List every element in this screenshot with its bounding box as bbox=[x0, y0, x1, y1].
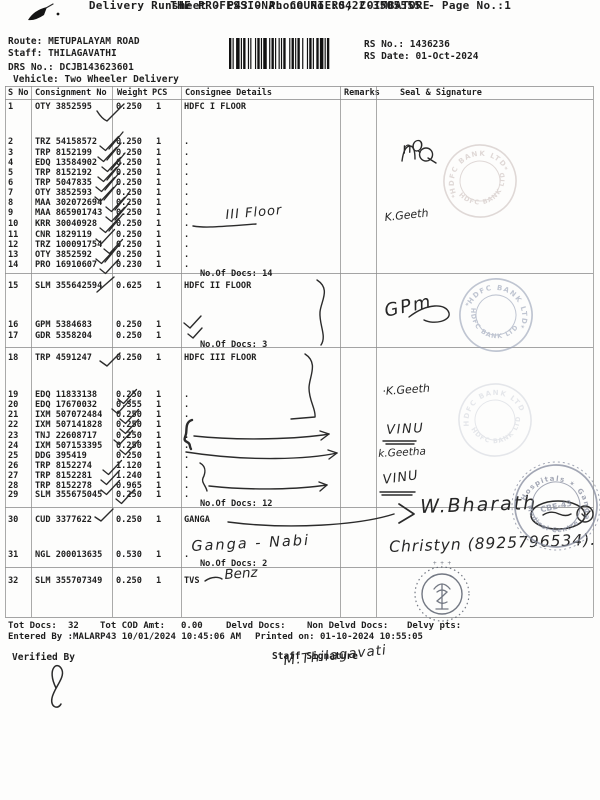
tot-cod-value: 0.00 bbox=[181, 622, 203, 631]
cell-weight: 0.250 bbox=[116, 149, 142, 158]
cell-pcs: 1 bbox=[156, 159, 161, 168]
cell-pcs: 1 bbox=[156, 199, 161, 208]
cell-sno: 7 bbox=[8, 189, 13, 198]
barcode-bar bbox=[255, 38, 256, 69]
cell-pcs: 1 bbox=[156, 189, 161, 198]
cell-consignment: DDG 395419 bbox=[35, 452, 87, 461]
barcode-bar bbox=[292, 38, 294, 69]
cell-sno: 30 bbox=[8, 516, 18, 525]
cell-sno: 8 bbox=[8, 199, 13, 208]
cell-pcs: 1 bbox=[156, 209, 161, 218]
cell-consignment: IXM 507072484 bbox=[35, 411, 102, 420]
barcode-bar bbox=[261, 38, 262, 69]
barcode-bar bbox=[281, 38, 282, 69]
col-consignee: Consignee Details bbox=[185, 89, 272, 98]
rs-no-label: RS No.: bbox=[364, 39, 404, 50]
signature-vinu-1: VINU bbox=[386, 422, 425, 437]
barcode-bar bbox=[325, 38, 326, 69]
cell-weight: 0.250 bbox=[116, 391, 142, 400]
barcode-bar bbox=[279, 38, 280, 69]
signature-k-geetha: k.Geetha bbox=[378, 447, 426, 460]
svg-text:✶: ✶ bbox=[449, 191, 457, 200]
staff-value: THILAGAVATHI bbox=[48, 48, 117, 59]
cell-pcs: 1 bbox=[156, 103, 161, 112]
cell-consignment: OTY 3852595 bbox=[35, 103, 92, 112]
cell-pcs: 1 bbox=[156, 411, 161, 420]
grid-vline bbox=[376, 86, 377, 617]
cell-sno: 12 bbox=[8, 241, 18, 250]
cell-weight: 0.250 bbox=[116, 332, 142, 341]
cell-weight: 0.250 bbox=[116, 159, 142, 168]
cell-sno: 1 bbox=[8, 103, 13, 112]
cell-pcs: 1 bbox=[156, 179, 161, 188]
svg-text:✶: ✶ bbox=[519, 322, 527, 331]
barcode-bar bbox=[243, 38, 245, 69]
cell-pcs: 1 bbox=[156, 261, 161, 270]
cell-sno: 9 bbox=[8, 209, 13, 218]
cell-sno: 26 bbox=[8, 462, 18, 471]
cell-weight: 0.250 bbox=[116, 103, 142, 112]
cell-pcs: 1 bbox=[156, 231, 161, 240]
barcode-bar bbox=[320, 38, 324, 69]
cell-consignment: IXM 507153395 bbox=[35, 442, 102, 451]
grid-hline bbox=[5, 99, 593, 100]
cell-consignee: . bbox=[184, 169, 189, 178]
svg-text:HDFC BANK LTD: HDFC BANK LTD bbox=[456, 169, 516, 216]
cell-sno: 15 bbox=[8, 282, 18, 291]
cell-consignment: TRP 5047835 bbox=[35, 179, 92, 188]
cell-pcs: 1 bbox=[156, 138, 161, 147]
cell-consignment: EDQ 17670032 bbox=[35, 401, 97, 410]
cell-pcs: 1 bbox=[156, 516, 161, 525]
barcode-bar bbox=[233, 38, 234, 69]
docs-count-label: No.Of Docs: 14 bbox=[200, 270, 272, 279]
cell-sno: 11 bbox=[8, 231, 18, 240]
barcode-bar bbox=[236, 38, 240, 69]
barcode-bar bbox=[263, 38, 267, 69]
barcode-bar bbox=[307, 38, 308, 69]
cell-consignee: . bbox=[184, 452, 189, 461]
rs-date-value: 01-Oct-2024 bbox=[416, 51, 479, 62]
barcode-bar bbox=[271, 38, 273, 69]
cell-pcs: 1 bbox=[156, 432, 161, 441]
cell-pcs: 1 bbox=[156, 282, 161, 291]
col-sno: S No bbox=[8, 89, 28, 98]
cell-weight: 0.530 bbox=[116, 551, 142, 560]
cell-consignment: TRP 4591247 bbox=[35, 354, 92, 363]
grid-vline bbox=[31, 86, 32, 617]
cell-consignee: . bbox=[184, 138, 189, 147]
drs-value: DCJB143623601 bbox=[60, 62, 134, 73]
cell-weight: 0.250 bbox=[116, 321, 142, 330]
rs-no-line: RS No.: 1436236 bbox=[364, 40, 450, 50]
cell-sno: 22 bbox=[8, 421, 18, 430]
svg-text:HDFC BANK LTD: HDFC BANK LTD bbox=[469, 413, 528, 451]
delivery-runsheet-document: THE PROFESSIONAL COURIERS, COIMBATORE De… bbox=[0, 0, 600, 800]
tot-cod-label: Tot COD Amt: bbox=[100, 622, 165, 631]
cell-weight: 0.250 bbox=[116, 354, 142, 363]
cell-sno: 29 bbox=[8, 491, 18, 500]
cell-consignee: . bbox=[184, 391, 189, 400]
cell-consignee: . bbox=[184, 199, 189, 208]
svg-text:HDFC BANK LTD: HDFC BANK LTD bbox=[465, 274, 538, 327]
barcode-bar bbox=[313, 38, 314, 69]
grid-vline bbox=[112, 86, 113, 617]
cell-consignment: SLM 355642594 bbox=[35, 282, 102, 291]
cell-consignee: . bbox=[184, 241, 189, 250]
cell-consignment: MAA 302072694 bbox=[35, 199, 102, 208]
svg-text:HDFC BANK LTD: HDFC BANK LTD bbox=[461, 305, 521, 348]
cell-consignee: . bbox=[184, 442, 189, 451]
cell-consignee: TVS bbox=[184, 577, 200, 586]
col-pcs: PCS bbox=[152, 89, 167, 98]
barcode-bar bbox=[295, 38, 296, 69]
cell-weight: 0.250 bbox=[116, 138, 142, 147]
grid-vline bbox=[181, 86, 182, 617]
signature-k-geeth-1: K.Geeth bbox=[384, 207, 429, 223]
cell-pcs: 1 bbox=[156, 332, 161, 341]
delvy-pts-label: Delvy pts: bbox=[407, 622, 461, 631]
cell-consignee: . bbox=[184, 462, 189, 471]
cell-pcs: 1 bbox=[156, 321, 161, 330]
printed-on: Printed on: 01-10-2024 10:55:05 bbox=[255, 633, 423, 642]
signature-k-geeth-2: ·K.Geeth bbox=[382, 383, 430, 397]
col-seal: Seal & Signature bbox=[400, 89, 482, 98]
barcode-bar bbox=[283, 38, 285, 69]
barcode-bar bbox=[289, 38, 290, 69]
col-remarks: Remarks bbox=[344, 89, 380, 98]
cell-weight: 0.250 bbox=[116, 179, 142, 188]
verified-by-label: Verified By bbox=[12, 653, 75, 663]
docs-count-label: No.Of Docs: 3 bbox=[200, 341, 267, 350]
cell-consignment: MAA 865901743 bbox=[35, 209, 102, 218]
cell-pcs: 1 bbox=[156, 491, 161, 500]
cell-consignment: GDR 5358204 bbox=[35, 332, 92, 341]
handwritten-benz: Benz bbox=[224, 567, 258, 583]
cell-weight: 0.250 bbox=[116, 189, 142, 198]
signature-bharath: W.Bharath bbox=[420, 494, 538, 517]
caduceus-icon bbox=[434, 584, 450, 609]
tot-docs-label: Tot Docs: bbox=[8, 622, 57, 631]
grid-vline bbox=[340, 86, 341, 617]
cell-sno: 24 bbox=[8, 442, 18, 451]
delvd-docs-label: Delvd Docs: bbox=[226, 622, 286, 631]
barcode-bar bbox=[297, 38, 299, 69]
cell-weight: 0.250 bbox=[116, 432, 142, 441]
rs-no-value: 1436236 bbox=[410, 39, 450, 50]
cell-consignee: . bbox=[184, 231, 189, 240]
cell-consignment: SLM 355675045 bbox=[35, 491, 102, 500]
handwritten-floor-note: III Floor bbox=[225, 204, 283, 222]
cell-weight: 0.250 bbox=[116, 251, 142, 260]
cell-sno: 6 bbox=[8, 179, 13, 188]
cell-consignee: . bbox=[184, 551, 189, 560]
cell-consignment: TNJ 22608717 bbox=[35, 432, 97, 441]
cell-sno: 5 bbox=[8, 169, 13, 178]
cell-weight: 0.250 bbox=[116, 209, 142, 218]
cell-pcs: 1 bbox=[156, 354, 161, 363]
cell-sno: 32 bbox=[8, 577, 18, 586]
cell-sno: 13 bbox=[8, 251, 18, 260]
cell-pcs: 1 bbox=[156, 149, 161, 158]
rs-date-line: RS Date: 01-Oct-2024 bbox=[364, 52, 478, 62]
signature-vinu-2: VINU bbox=[382, 469, 419, 487]
grid-hline bbox=[5, 567, 593, 568]
cell-pcs: 1 bbox=[156, 391, 161, 400]
route-line: Route: METUPALAYAM ROAD bbox=[8, 37, 140, 47]
barcode-bar bbox=[229, 38, 231, 69]
cell-weight: 0.250 bbox=[116, 411, 142, 420]
cell-consignment: PRO 16910607 bbox=[35, 261, 97, 270]
cell-sno: 19 bbox=[8, 391, 18, 400]
cell-weight: 0.250 bbox=[116, 442, 142, 451]
cell-weight: 0.355 bbox=[116, 401, 142, 410]
cell-pcs: 1 bbox=[156, 251, 161, 260]
drs-line: DRS No.: DCJB143623601 bbox=[8, 63, 134, 73]
barcode-bar bbox=[302, 38, 303, 69]
cell-consignment: KRR 30040928 bbox=[35, 220, 97, 229]
cell-weight: 0.230 bbox=[116, 261, 142, 270]
cell-weight: 0.250 bbox=[116, 169, 142, 178]
cell-consignee: . bbox=[184, 251, 189, 260]
cell-pcs: 1 bbox=[156, 551, 161, 560]
cell-consignee: . bbox=[184, 432, 189, 441]
cell-pcs: 1 bbox=[156, 169, 161, 178]
cell-consignee: HDFC II FLOOR bbox=[184, 282, 251, 291]
cell-consignment: EDQ 13584902 bbox=[35, 159, 97, 168]
cell-consignment: TRP 8152274 bbox=[35, 462, 92, 471]
cell-sno: 10 bbox=[8, 220, 18, 229]
cell-consignee: HDFC III FLOOR bbox=[184, 354, 256, 363]
cell-consignee: . bbox=[184, 179, 189, 188]
barcode-bar bbox=[316, 38, 318, 69]
cell-pcs: 1 bbox=[156, 442, 161, 451]
cell-sno: 21 bbox=[8, 411, 18, 420]
cell-weight: 0.250 bbox=[116, 220, 142, 229]
barcode-bar bbox=[250, 38, 251, 69]
cell-consignment: CNR 1829119 bbox=[35, 231, 92, 240]
cell-weight: 0.250 bbox=[116, 491, 142, 500]
cell-consignment: OTY 3852593 bbox=[35, 189, 92, 198]
vehicle-label: Vehicle: bbox=[13, 74, 59, 85]
route-label: Route: bbox=[8, 36, 42, 47]
cell-weight: 0.250 bbox=[116, 452, 142, 461]
barcode-bar bbox=[241, 38, 242, 69]
cell-sno: 16 bbox=[8, 321, 18, 330]
svg-text:✶: ✶ bbox=[464, 300, 472, 309]
cell-consignment: TRP 8152192 bbox=[35, 169, 92, 178]
cell-consignment: CUD 3377622 bbox=[35, 516, 92, 525]
grid-vline bbox=[5, 86, 6, 617]
barcode-bar bbox=[275, 38, 276, 69]
barcode-bar bbox=[248, 38, 249, 69]
drs-label: DRS No.: bbox=[8, 62, 54, 73]
cell-pcs: 1 bbox=[156, 241, 161, 250]
barcode-bar bbox=[309, 38, 311, 69]
col-weight: Weight bbox=[117, 89, 148, 98]
cell-consignee: . bbox=[184, 189, 189, 198]
vehicle-value: Two Wheeler Delivery bbox=[65, 74, 179, 85]
cell-pcs: 1 bbox=[156, 462, 161, 471]
signature-gpm: GPm bbox=[383, 293, 434, 321]
entered-by: Entered By :MALARP43 10/01/2024 10:45:06… bbox=[8, 633, 241, 642]
staff-signature-handwriting: M.Thilagavati bbox=[283, 644, 388, 668]
cell-consignee: . bbox=[184, 421, 189, 430]
cell-weight: 0.625 bbox=[116, 282, 142, 291]
barcode-bar bbox=[327, 38, 329, 69]
cell-consignee: GANGA bbox=[184, 516, 210, 525]
handwritten-nq-mark: nQ bbox=[401, 138, 425, 156]
cell-pcs: 1 bbox=[156, 421, 161, 430]
col-consignment: Consignment No bbox=[35, 89, 107, 98]
handwritten-ganga-nabi: Ganga - Nabi bbox=[191, 534, 310, 555]
cell-consignee: . bbox=[184, 220, 189, 229]
cell-weight: 0.250 bbox=[116, 199, 142, 208]
cell-consignment: OTY 3852592 bbox=[35, 251, 92, 260]
cell-consignee: . bbox=[184, 159, 189, 168]
cell-sno: 31 bbox=[8, 551, 18, 560]
cell-sno: 23 bbox=[8, 432, 18, 441]
hdfc-stamp-3: HDFC BANK LTD HDFC BANK LTD bbox=[451, 376, 539, 464]
cell-sno: 27 bbox=[8, 472, 18, 481]
document-subtitle: Delivery Runsheet - P43 - Phone No.:0422… bbox=[0, 0, 600, 11]
cell-sno: 17 bbox=[8, 332, 18, 341]
medical-symbol-stamp: + + + bbox=[415, 560, 469, 621]
cell-consignee: . bbox=[184, 491, 189, 500]
cell-sno: 3 bbox=[8, 149, 13, 158]
cell-consignee: . bbox=[184, 209, 189, 218]
cell-pcs: 1 bbox=[156, 577, 161, 586]
cell-sno: 25 bbox=[8, 452, 18, 461]
hdfc-stamp-1: HDFC BANK LTD HDFC BANK LTD ✶✶ bbox=[431, 132, 528, 229]
barcode-bar bbox=[269, 38, 270, 69]
svg-text:+ + +: + + + bbox=[433, 560, 451, 567]
cell-pcs: 1 bbox=[156, 220, 161, 229]
rs-date-label: RS Date: bbox=[364, 51, 410, 62]
cell-consignment: TRP 8152281 bbox=[35, 472, 92, 481]
cell-consignee: HDFC I FLOOR bbox=[184, 103, 246, 112]
cell-consignee: . bbox=[184, 401, 189, 410]
docs-count-label: No.Of Docs: 12 bbox=[200, 500, 272, 509]
cell-sno: 2 bbox=[8, 138, 13, 147]
svg-text:HDFC BANK LTD: HDFC BANK LTD bbox=[455, 381, 527, 428]
cell-weight: 1.120 bbox=[116, 462, 142, 471]
cell-sno: 4 bbox=[8, 159, 13, 168]
staff-label: Staff: bbox=[8, 48, 42, 59]
svg-text:HDFC BANK LTD: HDFC BANK LTD bbox=[436, 138, 509, 196]
cell-consignment: TRP 8152199 bbox=[35, 149, 92, 158]
cell-pcs: 1 bbox=[156, 401, 161, 410]
cell-consignee: . bbox=[184, 411, 189, 420]
non-delvd-docs-label: Non Delvd Docs: bbox=[307, 622, 388, 631]
grid-hline bbox=[5, 347, 593, 348]
cell-weight: 0.250 bbox=[116, 516, 142, 525]
cell-weight: 0.250 bbox=[116, 241, 142, 250]
cell-consignee: . bbox=[184, 472, 189, 481]
barcode-bar bbox=[257, 38, 259, 69]
staff-line: Staff: THILAGAVATHI bbox=[8, 49, 117, 59]
cell-consignment: TRZ 100091754 bbox=[35, 241, 102, 250]
tot-docs-value: 32 bbox=[68, 622, 79, 631]
cell-consignee: . bbox=[184, 261, 189, 270]
cell-consignment: NGL 200013635 bbox=[35, 551, 102, 560]
cell-consignment: TRZ 54158572 bbox=[35, 138, 97, 147]
cell-sno: 14 bbox=[8, 261, 18, 270]
barcode bbox=[229, 38, 359, 72]
cell-consignment: EDQ 11833138 bbox=[35, 391, 97, 400]
route-value: METUPALAYAM ROAD bbox=[48, 36, 140, 47]
cell-consignment: SLM 355707349 bbox=[35, 577, 102, 586]
svg-text:✶: ✶ bbox=[502, 163, 510, 172]
cell-weight: 0.250 bbox=[116, 421, 142, 430]
grid-hline bbox=[5, 86, 593, 87]
cell-pcs: 1 bbox=[156, 452, 161, 461]
cell-consignment: IXM 507141828 bbox=[35, 421, 102, 430]
cell-consignee: . bbox=[184, 149, 189, 158]
cell-consignment: GPM 5384683 bbox=[35, 321, 92, 330]
cell-sno: 18 bbox=[8, 354, 18, 363]
vehicle-line: Vehicle: Two Wheeler Delivery bbox=[13, 75, 179, 85]
signature-contact-number: Christyn (8925796534). bbox=[389, 533, 596, 556]
cell-weight: 0.250 bbox=[116, 577, 142, 586]
cell-weight: 0.250 bbox=[116, 231, 142, 240]
cell-pcs: 1 bbox=[156, 472, 161, 481]
grid-hline bbox=[5, 617, 593, 618]
cell-sno: 20 bbox=[8, 401, 18, 410]
cell-weight: 1.240 bbox=[116, 472, 142, 481]
grid-hline bbox=[5, 273, 593, 274]
